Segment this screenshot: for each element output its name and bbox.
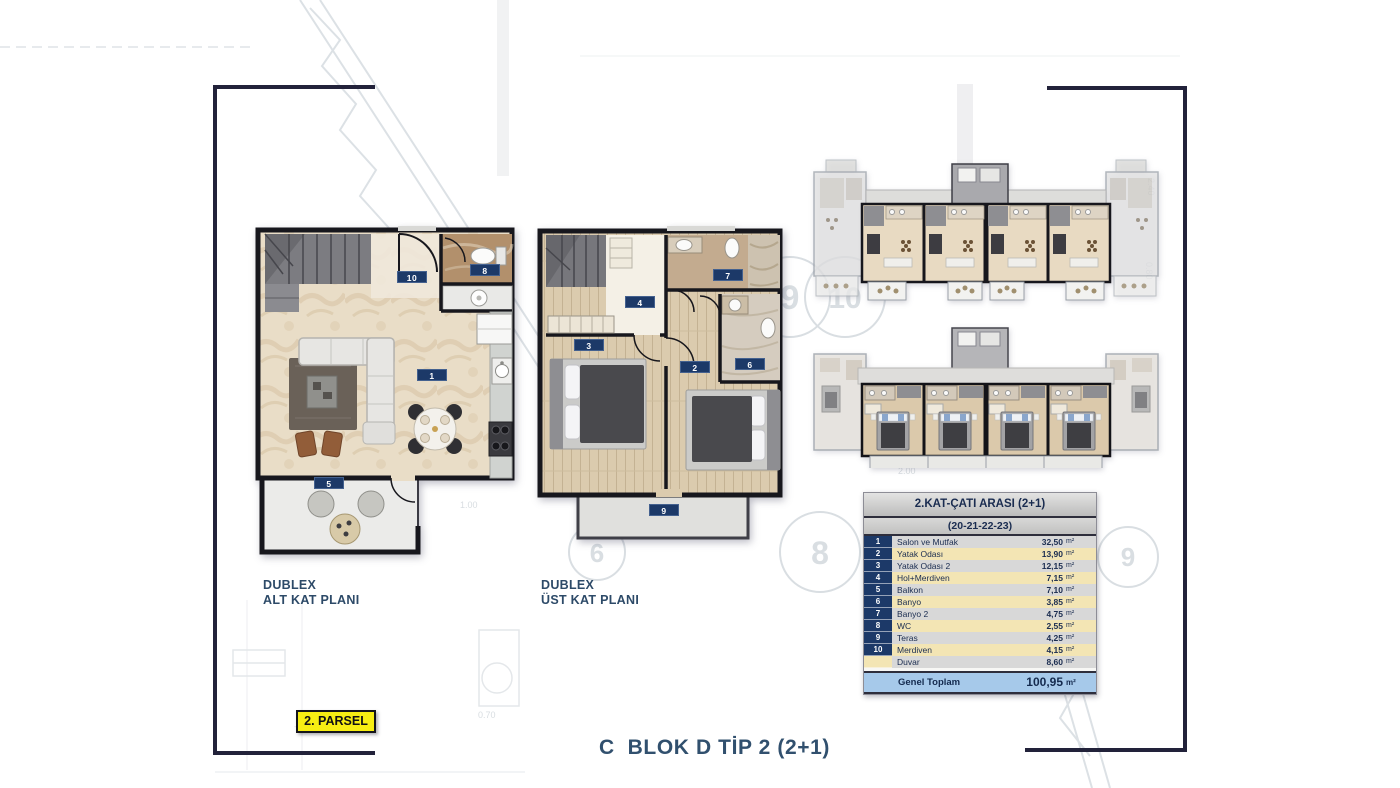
row-value: 32,50	[1011, 536, 1063, 548]
toilet-symbol	[725, 238, 739, 258]
row-name: Duvar	[892, 656, 1011, 668]
lower-plan-label-line2: ALT KAT PLANI	[263, 593, 359, 608]
row-unit: m²	[1063, 536, 1096, 548]
row-name: Banyo	[892, 596, 1011, 608]
corridor-slab	[858, 368, 1114, 384]
row-number: 4	[864, 572, 892, 584]
row-unit: m²	[1063, 608, 1096, 620]
balcony-door-opening	[391, 473, 415, 481]
wc-vanity	[443, 286, 512, 311]
sink-symbol	[729, 299, 741, 311]
room-badge-teras: 9	[649, 504, 679, 516]
row-name: Banyo 2	[892, 608, 1011, 620]
table-row: 8 WC 2,55 m²	[864, 620, 1096, 632]
site-key-plan-upper	[812, 158, 1160, 304]
toilet-symbol	[471, 247, 506, 265]
wc-room	[441, 234, 512, 284]
room-badge-hol: 4	[625, 296, 655, 308]
row-unit: m²	[1063, 572, 1096, 584]
stair-core	[952, 328, 1008, 370]
end-wing-left	[814, 160, 866, 296]
blueprint-page: 9 10 6 8 9 0.70 +0,20 1.00 2.00 2.40 0.8…	[0, 0, 1400, 788]
table-row: 4 Hol+Merdiven 7,15 m²	[864, 572, 1096, 584]
table-row: Duvar 8,60 m²	[864, 656, 1096, 668]
row-value: 4,15	[1011, 644, 1063, 656]
table-row: 3 Yatak Odası 2 12,15 m²	[864, 560, 1096, 572]
total-value: 100,95	[1011, 673, 1063, 692]
row-number: 3	[864, 560, 892, 572]
row-name: WC	[892, 620, 1011, 632]
block-type-title: C BLOK D TİP 2 (2+1)	[599, 735, 830, 761]
row-name: Teras	[892, 632, 1011, 644]
sink-symbol	[676, 240, 692, 251]
row-name: Balkon	[892, 584, 1011, 596]
row-value: 13,90	[1011, 548, 1063, 560]
row-value: 8,60	[1011, 656, 1063, 668]
row-name: Yatak Odası 2	[892, 560, 1011, 572]
row-unit: m²	[1063, 548, 1096, 560]
table-title: 2.KAT-ÇATI ARASI (2+1)	[864, 493, 1096, 518]
kitchen-sink-symbol	[492, 358, 512, 384]
row-name: Salon ve Mutfak	[892, 536, 1011, 548]
row-number: 10	[864, 644, 892, 656]
row-number: 8	[864, 620, 892, 632]
room-badge-merdiven: 10	[397, 271, 427, 283]
row-number: 1	[864, 536, 892, 548]
closet-shelves	[610, 238, 632, 268]
row-number	[864, 656, 892, 668]
table-total-row: Genel Toplam 100,95 m²	[864, 671, 1096, 694]
coffee-table	[307, 376, 337, 408]
room-badge-salon: 1	[417, 369, 447, 381]
table-row: 2 Yatak Odası 13,90 m²	[864, 548, 1096, 560]
row-value: 2,55	[1011, 620, 1063, 632]
room-badge-banyo2: 7	[713, 269, 743, 281]
banyo2-room	[666, 235, 780, 290]
row-unit: m²	[1063, 596, 1096, 608]
stairs	[546, 235, 606, 287]
threshold	[667, 226, 735, 231]
total-unit: m²	[1063, 673, 1096, 692]
stair-core	[952, 164, 1008, 204]
room-badge-yatak: 2	[680, 361, 710, 373]
row-number: 6	[864, 596, 892, 608]
row-value: 4,25	[1011, 632, 1063, 644]
terrace-band	[870, 456, 1102, 468]
row-number: 7	[864, 608, 892, 620]
entry-threshold	[398, 226, 436, 231]
parsel-badge: 2. PARSEL	[296, 710, 376, 733]
floor-plan-dublex-ust-kat	[536, 226, 786, 544]
table-row: 1 Salon ve Mutfak 32,50 m²	[864, 536, 1096, 548]
row-number: 5	[864, 584, 892, 596]
row-name: Merdiven	[892, 644, 1011, 656]
toilet-symbol	[761, 318, 775, 338]
lower-plan-label: DUBLEX ALT KAT PLANI	[263, 578, 359, 608]
area-summary-table: 2.KAT-ÇATI ARASI (2+1) (20-21-22-23) 1 S…	[863, 492, 1097, 695]
row-value: 4,75	[1011, 608, 1063, 620]
total-label: Genel Toplam	[864, 673, 1011, 692]
table-subtitle: (20-21-22-23)	[864, 518, 1096, 536]
row-unit: m²	[1063, 620, 1096, 632]
row-value: 3,85	[1011, 596, 1063, 608]
table-row: 7 Banyo 2 4,75 m²	[864, 608, 1096, 620]
terrace-door-opening	[656, 489, 682, 497]
row-value: 7,15	[1011, 572, 1063, 584]
unit-balconies	[868, 282, 1104, 300]
room-badge-balkon: 5	[314, 477, 344, 489]
row-name: Hol+Merdiven	[892, 572, 1011, 584]
room-badge-banyo: 6	[735, 358, 765, 370]
table-row: 5 Balkon 7,10 m²	[864, 584, 1096, 596]
lower-plan-label-line1: DUBLEX	[263, 578, 359, 593]
row-name: Yatak Odası	[892, 548, 1011, 560]
row-value: 7,10	[1011, 584, 1063, 596]
upper-plan-label-line2: ÜST KAT PLANI	[541, 593, 639, 608]
room-badge-wc: 8	[470, 264, 500, 276]
row-unit: m²	[1063, 644, 1096, 656]
row-number: 9	[864, 632, 892, 644]
row-number: 2	[864, 548, 892, 560]
row-unit: m²	[1063, 560, 1096, 572]
room-badge-yatak2: 3	[574, 339, 604, 351]
end-wing-right	[1106, 160, 1158, 296]
dining-table	[408, 404, 462, 454]
row-unit: m²	[1063, 656, 1096, 668]
row-value: 12,15	[1011, 560, 1063, 572]
hall-floor	[371, 234, 441, 298]
bed	[550, 359, 646, 449]
armchair	[295, 431, 317, 458]
wardrobe	[548, 316, 614, 333]
stove-symbol	[489, 422, 512, 456]
table-row: 9 Teras 4,25 m²	[864, 632, 1096, 644]
living-room	[289, 338, 395, 457]
site-key-plan-lower	[812, 326, 1160, 468]
table-row: 6 Banyo 3,85 m²	[864, 596, 1096, 608]
table-row: 10 Merdiven 4,15 m²	[864, 644, 1096, 656]
row-unit: m²	[1063, 584, 1096, 596]
armchair	[321, 431, 343, 458]
upper-plan-label: DUBLEX ÜST KAT PLANI	[541, 578, 639, 608]
row-unit: m²	[1063, 632, 1096, 644]
bed	[686, 390, 780, 470]
upper-plan-label-line1: DUBLEX	[541, 578, 639, 593]
